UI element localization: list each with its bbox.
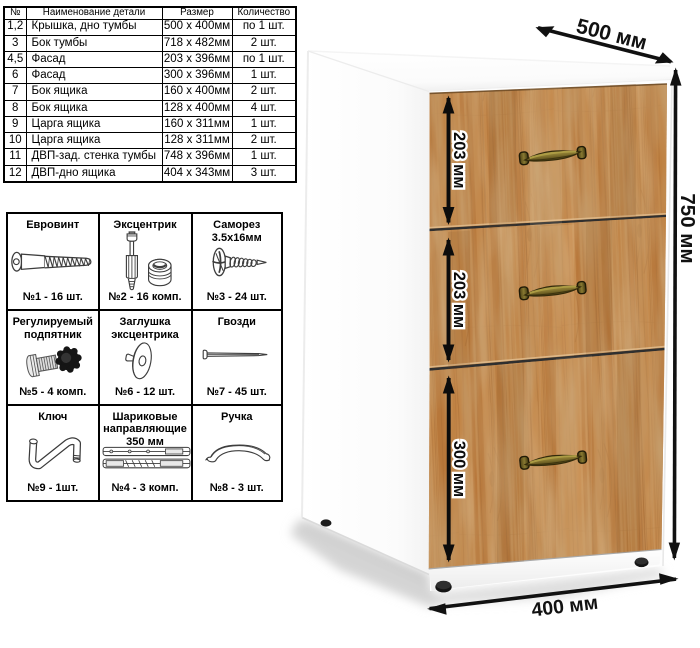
svg-text:300 мм: 300 мм <box>450 441 468 498</box>
svg-text:203 мм: 203 мм <box>450 272 468 329</box>
svg-text:500 мм: 500 мм <box>574 15 649 55</box>
svg-text:750 мм: 750 мм <box>676 193 699 263</box>
svg-text:203 мм: 203 мм <box>450 132 468 189</box>
